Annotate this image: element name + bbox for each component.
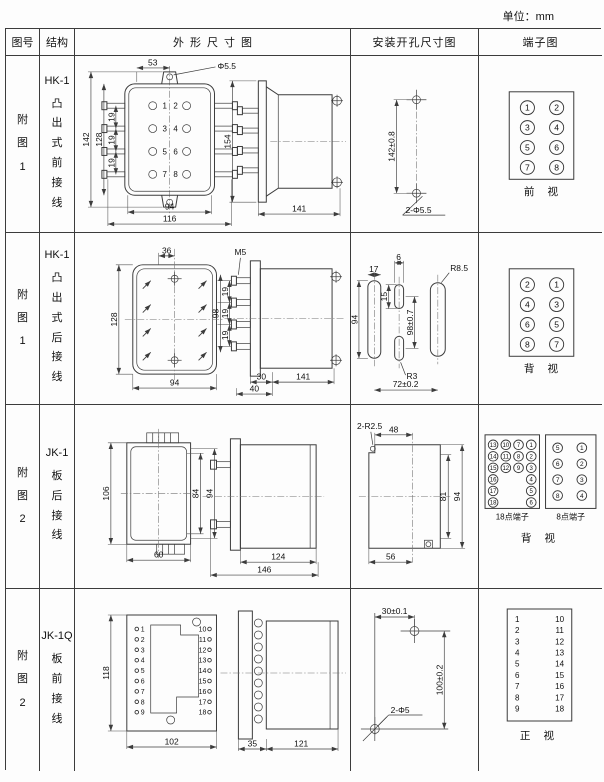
terminal-number: 13 xyxy=(555,649,564,658)
terminal-number: 13 xyxy=(199,658,207,665)
install-cell-row4: 30±0.1 100±0.2 2-Φ5 xyxy=(351,589,479,771)
terminal-number: 16 xyxy=(555,682,564,691)
dim-label: 146 xyxy=(257,565,271,575)
terminal-number: 7 xyxy=(162,170,167,179)
terminal-diagram-row1: 12345678 前 视 xyxy=(479,56,602,232)
unit-label: 单位：mm xyxy=(503,8,554,24)
terminal-block-label: 8点端子 xyxy=(556,511,585,521)
install-cell-row1: 142±0.8 2-Φ5.5 xyxy=(351,56,479,233)
terminal-number: 14 xyxy=(490,454,497,460)
terminal-number: 3 xyxy=(554,300,559,310)
terminal-number: 1 xyxy=(580,445,584,452)
structure-cell-row2: HK-1 凸 出 式 后 接 线 xyxy=(40,233,75,405)
terminal-number: 13 xyxy=(490,443,497,449)
dim-label: 17 xyxy=(369,264,379,274)
dim-label: 84 xyxy=(191,489,201,499)
header-terminal-label: 端子图 xyxy=(523,34,559,50)
terminal-cell-row4: 123456789 101112131415161718 正 视 xyxy=(479,589,602,771)
install-drawing-row3: 2-R2.5 48 81 94 56 xyxy=(351,405,478,588)
dim-label: 30 xyxy=(257,372,267,382)
terminal-number: 9 xyxy=(515,705,520,714)
terminal-number: 15 xyxy=(555,671,564,680)
terminal-number: 11 xyxy=(199,637,206,644)
dim-label: 121 xyxy=(294,738,308,748)
terminal-dot xyxy=(135,700,139,704)
terminal-dot xyxy=(208,700,212,704)
dim-label: 142 xyxy=(81,132,91,146)
terminal-number: 15 xyxy=(490,466,497,472)
terminal-number: 1 xyxy=(515,615,520,624)
terminal-number: 10 xyxy=(502,443,509,449)
dim-label: 19 xyxy=(106,135,116,145)
model-text: HK-1 xyxy=(44,75,69,87)
terminal-number: 6 xyxy=(525,320,530,330)
dim-label: 19 xyxy=(106,158,116,168)
terminal-number: 1 xyxy=(530,443,534,449)
install-cell-row2: 17 6 R8.5 15 94 98±0.7 R3 72±0.2 xyxy=(351,233,479,405)
model-text: JK-1 xyxy=(46,447,69,459)
model-text: HK-1 xyxy=(44,249,69,261)
terminal-number: 8 xyxy=(554,162,559,172)
install-drawing-row1: 142±0.8 2-Φ5.5 xyxy=(351,56,478,232)
terminal-dot xyxy=(135,710,139,714)
outline-cell-row3: 106 84 94 60 124 xyxy=(75,405,351,589)
header-terminal: 端子图 xyxy=(479,29,602,56)
terminal-dot xyxy=(208,627,212,631)
terminal-number: 7 xyxy=(554,339,559,349)
dim-label: 141 xyxy=(292,204,306,214)
terminal-block-label: 18点端子 xyxy=(496,511,529,521)
terminal-number: 6 xyxy=(530,501,534,507)
terminal-number: 6 xyxy=(515,671,520,680)
terminal-dot xyxy=(208,710,212,714)
terminal-number: 10 xyxy=(199,627,207,634)
dim-label: 19 xyxy=(220,287,230,297)
wiring-text: 板 后 接 线 xyxy=(52,467,63,546)
terminal-number: 2 xyxy=(525,280,530,290)
terminal-number: 3 xyxy=(525,123,530,133)
install-cell-row3: 2-R2.5 48 81 94 56 xyxy=(351,405,479,589)
wiring-text: 凸 出 式 后 接 线 xyxy=(52,269,63,388)
terminal-number: 8 xyxy=(556,493,560,500)
terminal-number: 2 xyxy=(173,102,178,111)
terminal-dot xyxy=(208,638,212,642)
dim-label: 94 xyxy=(452,491,462,501)
fig-no-text: 附 图 2 xyxy=(17,462,28,531)
fig-no-cell-row1: 附 图 1 xyxy=(6,56,40,233)
terminal-number: 5 xyxy=(141,668,145,675)
dim-label: 116 xyxy=(163,214,177,224)
terminal-number: 1 xyxy=(525,103,530,113)
dim-label: 15 xyxy=(379,292,389,302)
terminal-diagram-row4: 123456789 101112131415161718 正 视 xyxy=(479,589,602,771)
terminal-number: 5 xyxy=(530,489,534,495)
header-fig-label: 图号 xyxy=(12,34,34,50)
terminal-number: 2 xyxy=(515,626,520,635)
header-outline-label: 外形尺寸图 xyxy=(167,34,258,50)
terminal-number: 2 xyxy=(580,461,584,468)
header-outline: 外形尺寸图 xyxy=(75,29,351,56)
dim-label: 30±0.1 xyxy=(382,606,408,616)
terminal-number: 5 xyxy=(162,147,167,156)
dim-label: 118 xyxy=(101,666,111,680)
dim-label: 2-Φ5 xyxy=(391,705,410,715)
dim-label: 141 xyxy=(296,372,310,382)
outline-drawing-row4: 123456789 101112131415161718 118 102 35 xyxy=(75,589,350,771)
terminal-number: 3 xyxy=(162,124,167,133)
terminal-number: 4 xyxy=(554,123,559,133)
dim-label: Φ5.5 xyxy=(217,61,236,71)
terminal-cell-row1: 12345678 前 视 xyxy=(479,56,602,233)
terminal-number: 16 xyxy=(199,689,207,696)
outline-drawing-row3: 106 84 94 60 124 xyxy=(75,405,350,588)
dim-label: 102 xyxy=(165,736,179,746)
dim-label: 19 xyxy=(106,112,116,122)
dim-label: 72±0.2 xyxy=(393,379,419,389)
wiring-text: 板 前 接 线 xyxy=(52,650,63,729)
structure-cell-row3: JK-1 板 后 接 线 xyxy=(40,405,75,589)
terminal-number: 4 xyxy=(525,300,530,310)
terminal-number: 16 xyxy=(490,478,497,484)
terminal-cell-row2: 21436587 背 视 xyxy=(479,233,602,405)
dim-label: 56 xyxy=(386,552,396,562)
terminal-number: 3 xyxy=(141,647,145,654)
outline-cell-row2: 36 128 94 M5 98 xyxy=(75,233,351,405)
terminal-number: 4 xyxy=(530,478,534,484)
terminal-number: 6 xyxy=(556,461,560,468)
fig-no-text: 附 图 1 xyxy=(17,284,28,353)
terminal-number: 17 xyxy=(199,699,207,706)
fig-no-text: 附 图 1 xyxy=(17,109,28,178)
view-caption: 正 视 xyxy=(520,729,559,742)
dim-label: 154 xyxy=(222,134,232,148)
dim-label: 48 xyxy=(389,424,399,434)
terminal-number: 12 xyxy=(199,647,207,654)
terminal-dot xyxy=(208,679,212,683)
dim-label: 94 xyxy=(165,202,175,212)
dim-label: 94 xyxy=(351,314,359,324)
outline-cell-row4: 123456789 101112131415161718 118 102 35 xyxy=(75,589,351,771)
terminal-number: 18 xyxy=(555,705,564,714)
outline-cell-row1: 1357 2468 53 Φ5.5 142 128 xyxy=(75,56,351,233)
terminal-number: 7 xyxy=(141,689,145,696)
header-structure-label: 结构 xyxy=(46,34,68,50)
terminal-number: 17 xyxy=(555,693,564,702)
view-caption: 前 视 xyxy=(524,185,563,198)
terminal-dot xyxy=(208,669,212,673)
terminal-number: 2 xyxy=(530,454,534,460)
terminal-number: 18 xyxy=(199,710,207,717)
structure-cell-row1: HK-1 凸 出 式 前 接 线 xyxy=(40,56,75,233)
terminal-number: 12 xyxy=(502,466,509,472)
terminal-number: 1 xyxy=(162,102,167,111)
terminal-number: 11 xyxy=(503,454,510,460)
dim-label: 36 xyxy=(162,245,172,255)
terminal-number: 8 xyxy=(517,454,521,460)
dim-label: 128 xyxy=(109,312,119,326)
terminal-number: 10 xyxy=(555,615,564,624)
terminal-number: 14 xyxy=(199,668,207,675)
terminal-number: 6 xyxy=(173,147,178,156)
header-fig-no: 图号 xyxy=(6,29,40,56)
header-install-label: 安装开孔尺寸图 xyxy=(373,34,457,50)
terminal-dot xyxy=(135,690,139,694)
terminal-number: 12 xyxy=(555,637,564,646)
terminal-number: 8 xyxy=(515,693,520,702)
dimension-table: 图号 结构 外形尺寸图 安装开孔尺寸图 端子图 附 图 1 HK-1 凸 出 式… xyxy=(5,28,601,770)
terminal-number: 5 xyxy=(554,320,559,330)
dim-label: 100±0.2 xyxy=(434,664,444,695)
terminal-number: 4 xyxy=(515,649,520,658)
dim-label: 124 xyxy=(271,552,285,562)
dim-label: M5 xyxy=(235,247,247,257)
terminal-number: 11 xyxy=(555,626,564,635)
dim-label: 98±0.7 xyxy=(405,309,415,335)
terminal-cell-row3: 131071141182151293164175186 51627384 18点… xyxy=(479,405,602,589)
view-caption: 背 视 xyxy=(524,362,563,375)
terminal-dot xyxy=(135,658,139,662)
dim-label: 81 xyxy=(438,491,448,501)
terminal-number: 5 xyxy=(556,445,560,452)
terminal-dot xyxy=(208,690,212,694)
dim-label: 94 xyxy=(170,378,180,388)
terminal-number: 4 xyxy=(141,658,145,665)
manual-page: 单位：mm 图号 结构 外形尺寸图 安装开孔尺寸图 端子图 附 图 1 HK-1… xyxy=(0,0,604,782)
install-drawing-row2: 17 6 R8.5 15 94 98±0.7 R3 72±0.2 xyxy=(351,233,478,404)
dim-label: 142±0.8 xyxy=(387,131,397,162)
terminal-dot xyxy=(208,648,212,652)
terminal-dot xyxy=(135,669,139,673)
terminal-number: 9 xyxy=(141,710,145,717)
header-install: 安装开孔尺寸图 xyxy=(351,29,479,56)
dim-label: 19 xyxy=(220,330,230,340)
terminal-dot xyxy=(135,648,139,652)
terminal-number: 8 xyxy=(173,170,178,179)
terminal-number: 7 xyxy=(525,162,530,172)
terminal-diagram-row2: 21436587 背 视 xyxy=(479,233,602,404)
wiring-text: 凸 出 式 前 接 线 xyxy=(52,95,63,214)
terminal-dot xyxy=(135,627,139,631)
dim-label: 2-Φ5.5 xyxy=(406,205,432,215)
dim-label: 40 xyxy=(250,384,260,394)
outline-drawing-row2: 36 128 94 M5 98 xyxy=(75,233,350,404)
dim-label: 128 xyxy=(94,132,104,146)
terminal-number: 9 xyxy=(517,466,521,472)
terminal-number: 3 xyxy=(530,466,534,472)
fig-no-cell-row3: 附 图 2 xyxy=(6,405,40,589)
terminal-number: 8 xyxy=(141,699,145,706)
terminal-number: 6 xyxy=(554,143,559,153)
terminal-number: 1 xyxy=(554,280,559,290)
terminal-number: 7 xyxy=(515,682,520,691)
terminal-diagram-row3: 131071141182151293164175186 51627384 18点… xyxy=(479,405,602,588)
outline-drawing-row1: 1357 2468 53 Φ5.5 142 128 xyxy=(75,56,350,232)
terminal-number: 7 xyxy=(556,477,560,484)
terminal-number: 5 xyxy=(515,660,520,669)
model-text: JK-1Q xyxy=(41,630,72,642)
install-drawing-row4: 30±0.1 100±0.2 2-Φ5 xyxy=(351,589,478,771)
dim-label: 60 xyxy=(154,550,164,560)
terminal-number: 2 xyxy=(554,103,559,113)
terminal-number: 3 xyxy=(580,477,584,484)
terminal-number: 15 xyxy=(199,679,207,686)
dim-label: R8.5 xyxy=(450,263,468,273)
dim-label: 19 xyxy=(220,309,230,319)
terminal-number: 17 xyxy=(490,489,497,495)
view-caption: 背 视 xyxy=(521,531,560,544)
terminal-number: 7 xyxy=(517,443,521,449)
terminal-number: 4 xyxy=(580,493,584,500)
dim-label: 106 xyxy=(101,486,111,500)
fig-no-cell-row2: 附 图 1 xyxy=(6,233,40,405)
dim-label: 6 xyxy=(396,252,401,262)
dim-label: 2-R2.5 xyxy=(357,421,383,431)
terminal-number: 8 xyxy=(525,339,530,349)
terminal-dot xyxy=(208,658,212,662)
terminal-number: 4 xyxy=(173,124,178,133)
dim-label: 35 xyxy=(248,738,258,748)
terminal-number: 2 xyxy=(141,637,145,644)
terminal-dot xyxy=(135,679,139,683)
terminal-number: 3 xyxy=(515,637,520,646)
terminal-number: 5 xyxy=(525,143,530,153)
structure-cell-row4: JK-1Q 板 前 接 线 xyxy=(40,589,75,771)
terminal-number: 14 xyxy=(555,660,564,669)
fig-no-text: 附 图 2 xyxy=(17,645,28,714)
terminal-number: 6 xyxy=(141,679,145,686)
terminal-number: 18 xyxy=(490,501,497,507)
terminal-number: 1 xyxy=(141,627,145,634)
fig-no-cell-row4: 附 图 2 xyxy=(6,589,40,771)
dim-label: 53 xyxy=(148,57,158,67)
terminal-dot xyxy=(135,638,139,642)
header-structure: 结构 xyxy=(40,29,75,56)
